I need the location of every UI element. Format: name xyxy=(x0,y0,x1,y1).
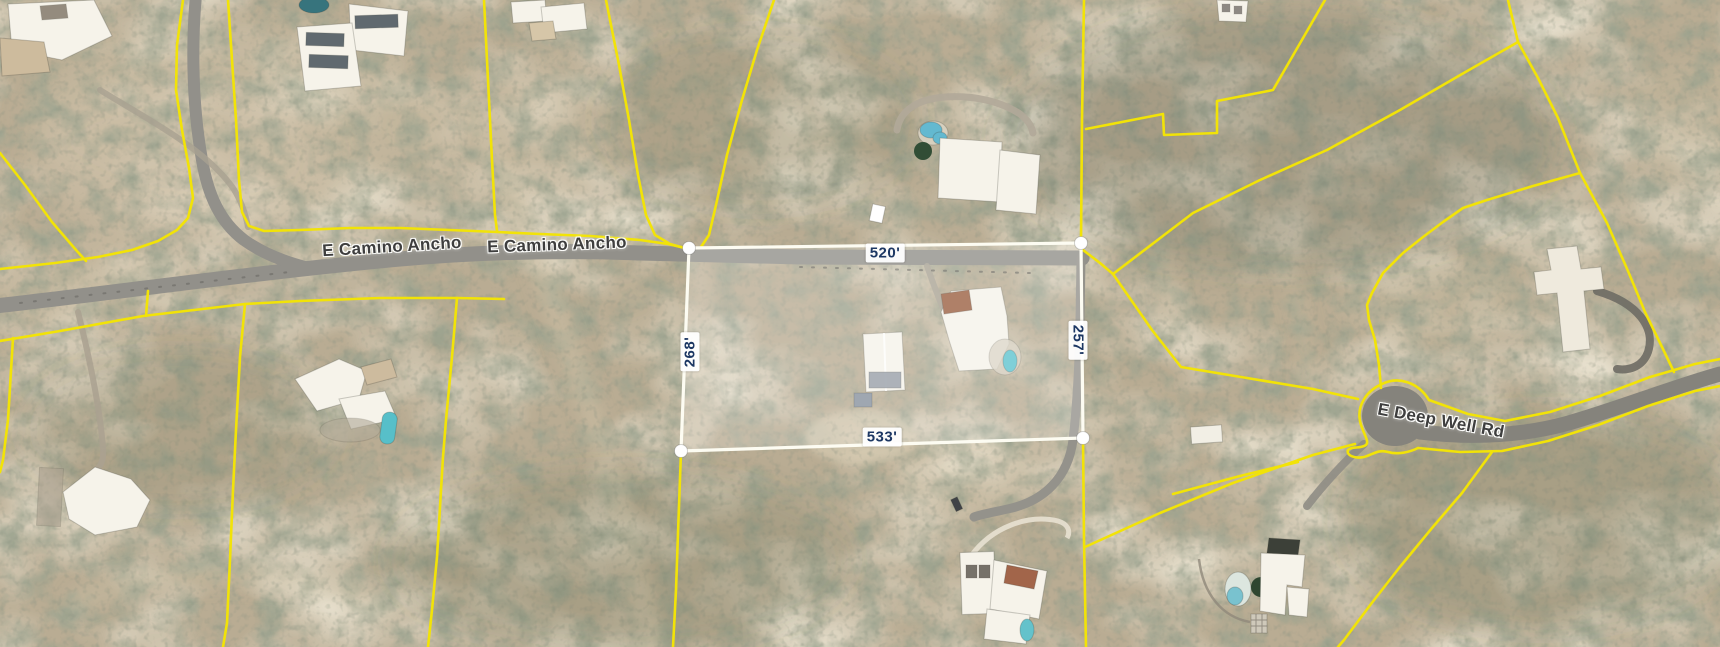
building xyxy=(996,150,1040,214)
dimension-label-bottom: 533' xyxy=(863,428,902,447)
building xyxy=(349,4,408,56)
parcel-vertex-sw[interactable] xyxy=(675,445,688,458)
parcel-vertex-ne[interactable] xyxy=(1075,237,1088,250)
dimension-label-left: 268' xyxy=(681,333,700,372)
dimension-label-top: 520' xyxy=(866,244,905,263)
lattice-pad xyxy=(1251,614,1267,633)
building xyxy=(40,4,68,20)
building xyxy=(0,38,50,76)
map-canvas[interactable]: E Camino Ancho E Camino Ancho E Deep Wel… xyxy=(0,0,1720,647)
patio xyxy=(36,467,63,526)
parcel-vertex-nw[interactable] xyxy=(683,242,696,255)
parcel-vertex-se[interactable] xyxy=(1077,432,1090,445)
pool xyxy=(1227,587,1243,605)
building xyxy=(1267,538,1300,555)
pool xyxy=(1020,619,1034,641)
dimension-label-right: 257' xyxy=(1069,321,1088,360)
rv-vehicle xyxy=(869,204,885,223)
solar-panels xyxy=(306,32,344,46)
highlighted-parcel[interactable] xyxy=(681,243,1083,451)
pool xyxy=(299,0,329,13)
patio xyxy=(320,418,380,442)
map-graphics xyxy=(0,0,1720,647)
building xyxy=(1190,425,1222,444)
solar-panels xyxy=(355,14,398,28)
building xyxy=(938,138,1002,202)
tree xyxy=(914,142,932,160)
building xyxy=(1287,587,1309,617)
building xyxy=(529,21,556,41)
solar-panels xyxy=(309,54,348,68)
parcel-highlight xyxy=(675,237,1090,458)
